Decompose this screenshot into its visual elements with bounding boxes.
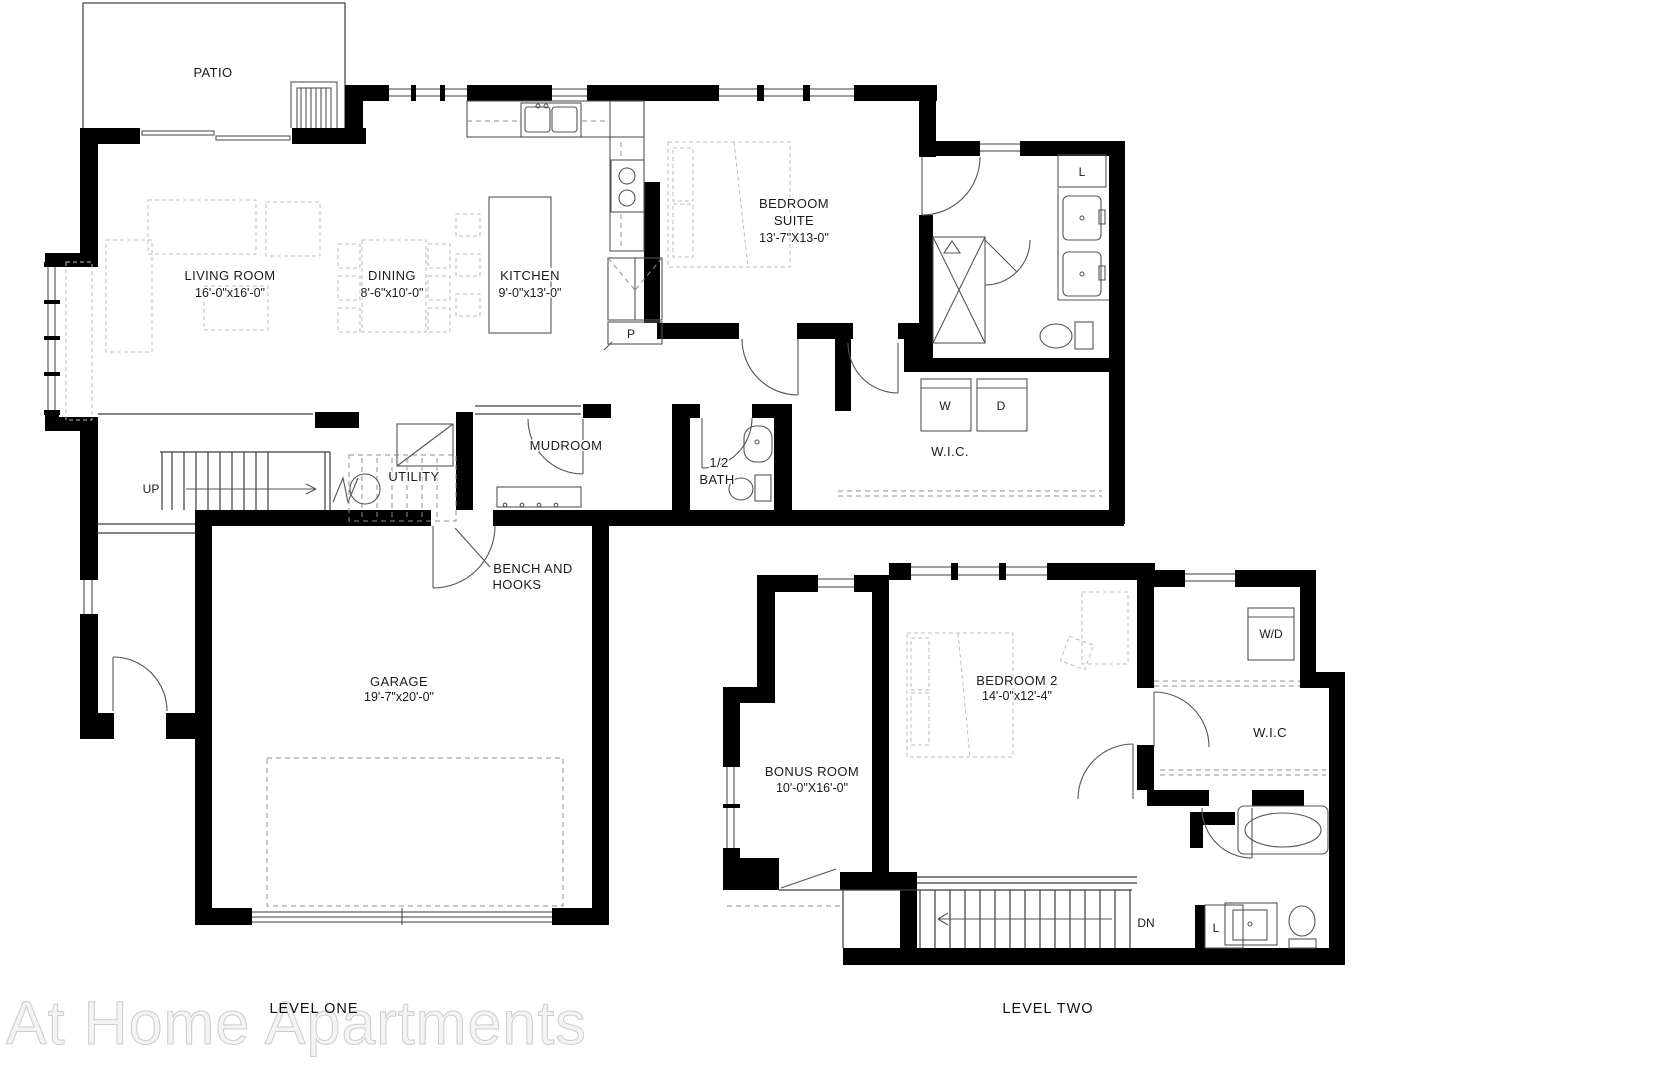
kitchen-label: KITCHEN bbox=[500, 268, 560, 283]
washer-label: W bbox=[939, 399, 951, 413]
linen-label: L bbox=[1079, 165, 1086, 179]
wic-label: W.I.C. bbox=[931, 444, 969, 459]
bedroom2-dims: 14'-0"x12'-4" bbox=[982, 689, 1052, 703]
watermark-text: At Home Apartments bbox=[6, 989, 587, 1057]
living-room-dims: 16'-0"x16'-0" bbox=[195, 286, 265, 300]
patio-label: PATIO bbox=[193, 65, 232, 80]
bench-hooks-label-line1: BENCH AND bbox=[493, 561, 572, 576]
dining-label: DINING bbox=[368, 268, 416, 283]
washer-dryer-label: W/D bbox=[1259, 627, 1283, 641]
bench-hooks-label-line2: HOOKS bbox=[493, 577, 542, 592]
linen2-label: L bbox=[1213, 921, 1220, 935]
level-two-title: LEVEL TWO bbox=[1002, 1001, 1093, 1017]
dining-dims: 8'-6"x10'-0" bbox=[361, 286, 424, 300]
kitchen-dims: 9'-0"x13'-0" bbox=[499, 286, 562, 300]
level-two-stairs bbox=[727, 877, 1137, 948]
bonus-room-dims: 10'-0"X16'-0" bbox=[776, 781, 848, 795]
bedroom2-label: BEDROOM 2 bbox=[976, 673, 1058, 688]
level-two-plan: BONUS ROOM 10'-0"X16'-0" BEDROOM 2 14'-0… bbox=[723, 563, 1345, 965]
level-one-doors bbox=[113, 157, 1030, 711]
bedroom-suite-dims: 13'-7"X13-0" bbox=[759, 231, 829, 245]
dn-label: DN bbox=[1137, 916, 1154, 930]
mudroom-label: MUDROOM bbox=[530, 438, 603, 453]
level-one-plan: PATIO LIVING ROOM 16'-0"x16'-0" DINING 8… bbox=[44, 3, 1125, 925]
up-label: UP bbox=[143, 482, 160, 496]
bedroom-suite-label-line2: SUITE bbox=[774, 213, 814, 228]
floor-plan-canvas: PATIO LIVING ROOM 16'-0"x16'-0" DINING 8… bbox=[0, 0, 1669, 1080]
dryer-label: D bbox=[997, 399, 1006, 413]
pantry-label: P bbox=[627, 327, 635, 341]
level-one-walls bbox=[45, 85, 1125, 925]
wic2-label: W.I.C bbox=[1253, 725, 1287, 740]
bonus-room-label: BONUS ROOM bbox=[765, 764, 859, 779]
half-bath-label-line1: 1/2 bbox=[709, 455, 728, 470]
bedroom-suite-label-line1: BEDROOM bbox=[759, 196, 829, 211]
utility-label: UTILITY bbox=[388, 469, 439, 484]
garage-dims: 19'-7"x20'-0" bbox=[364, 690, 434, 704]
level-two-windows bbox=[723, 563, 1240, 853]
half-bath-label-line2: BATH bbox=[699, 472, 734, 487]
garage-label: GARAGE bbox=[370, 674, 428, 689]
level-one-title: LEVEL ONE bbox=[269, 1001, 358, 1017]
floor-plan-drawing: PATIO LIVING ROOM 16'-0"x16'-0" DINING 8… bbox=[0, 0, 1669, 1080]
level-one-furniture bbox=[66, 142, 790, 420]
living-room-label: LIVING ROOM bbox=[184, 268, 275, 283]
